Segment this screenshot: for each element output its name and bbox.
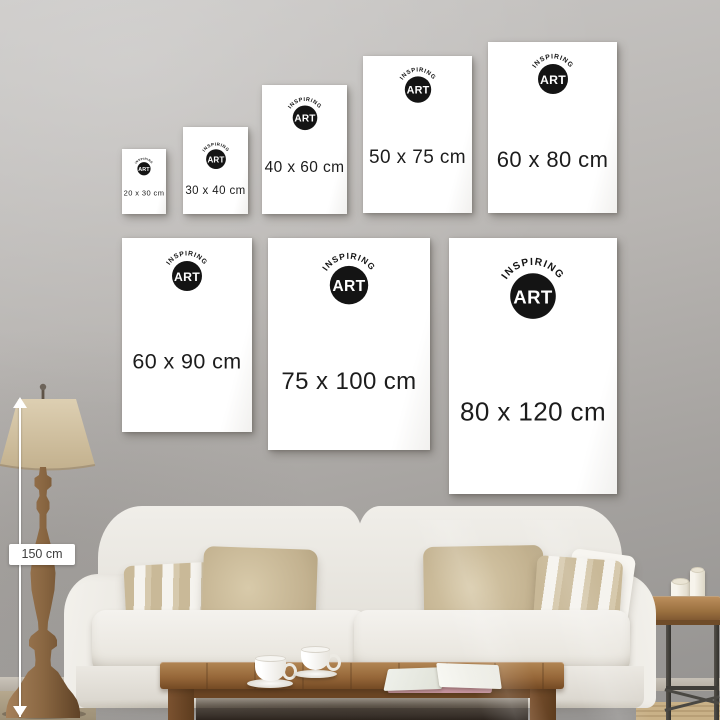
cup-rim	[255, 655, 286, 662]
poster-30x40: INSPIRING ART 30 x 40 cm	[183, 127, 248, 214]
poster-75x100: INSPIRING ART 75 x 100 cm	[268, 238, 430, 450]
cup-rim	[301, 646, 330, 653]
lamp-base	[6, 467, 80, 718]
poster-size-label: 30 x 40 cm	[185, 185, 245, 197]
logo-mark-text: ART	[513, 286, 553, 307]
arrow-up-icon	[13, 397, 27, 408]
logo-mark-text: ART	[332, 278, 365, 295]
side-table-leg	[714, 622, 719, 720]
inspiring-art-logo-icon: INSPIRING ART	[317, 248, 381, 312]
poster-60x90: INSPIRING ART 60 x 90 cm	[122, 238, 252, 432]
poster-size-label: 80 x 120 cm	[460, 397, 606, 428]
side-table-brace	[666, 686, 719, 690]
logo-mark-text: ART	[174, 270, 200, 284]
poster-size-label: 75 x 100 cm	[281, 368, 416, 396]
coffee-table-leg	[530, 688, 556, 720]
lamp-shade	[0, 399, 95, 470]
saucer	[294, 670, 337, 678]
side-table-apron	[654, 620, 720, 625]
candle	[690, 570, 705, 598]
poster-size-label: 20 x 30 cm	[124, 188, 165, 197]
poster-size-label: 50 x 75 cm	[369, 147, 466, 169]
arrow-down-icon	[13, 706, 27, 717]
poster-size-label: 40 x 60 cm	[265, 159, 345, 177]
poster-20x30: INSPIRING ART 20 x 30 cm	[122, 149, 166, 214]
coffee-table-leg	[168, 688, 194, 720]
poster-80x120: INSPIRING ART 80 x 120 cm	[449, 238, 617, 494]
room-scene: INSPIRING ART 20 x 30 cm INSPIRING ART 3…	[0, 0, 720, 720]
candle-top	[672, 578, 689, 585]
logo-mark-text: ART	[138, 167, 150, 173]
logo-mark-text: ART	[294, 114, 316, 125]
poster-size-label: 60 x 80 cm	[497, 147, 609, 173]
logo-mark-text: ART	[540, 73, 566, 87]
inspiring-art-logo-icon: INSPIRING ART	[284, 94, 325, 135]
height-measurement-label: 150 cm	[9, 544, 75, 565]
side-table-top	[650, 596, 720, 621]
lamp-finial	[40, 384, 46, 390]
coffee-table-undergap	[196, 695, 528, 720]
inspiring-art-logo-icon: INSPIRING ART	[199, 140, 232, 173]
poster-60x80: INSPIRING ART 60 x 80 cm	[488, 42, 617, 213]
poster-50x75: INSPIRING ART 50 x 75 cm	[363, 56, 472, 213]
inspiring-art-logo-icon: INSPIRING ART	[162, 247, 212, 297]
logo-mark-text: ART	[207, 155, 224, 164]
logo-mark-text: ART	[406, 85, 429, 97]
poster-size-label: 60 x 90 cm	[132, 350, 241, 375]
coffee-table-rail	[168, 688, 556, 698]
inspiring-art-logo-icon: INSPIRING ART	[495, 252, 571, 328]
side-table-leg	[666, 620, 671, 720]
book-page-right	[436, 663, 502, 689]
poster-40x60: INSPIRING ART 40 x 60 cm	[262, 85, 347, 214]
inspiring-art-logo-icon: INSPIRING ART	[528, 50, 578, 100]
candle-top	[691, 567, 704, 573]
coffee-table-top	[160, 662, 564, 689]
inspiring-art-logo-icon: INSPIRING ART	[133, 156, 155, 178]
inspiring-art-logo-icon: INSPIRING ART	[396, 64, 440, 108]
